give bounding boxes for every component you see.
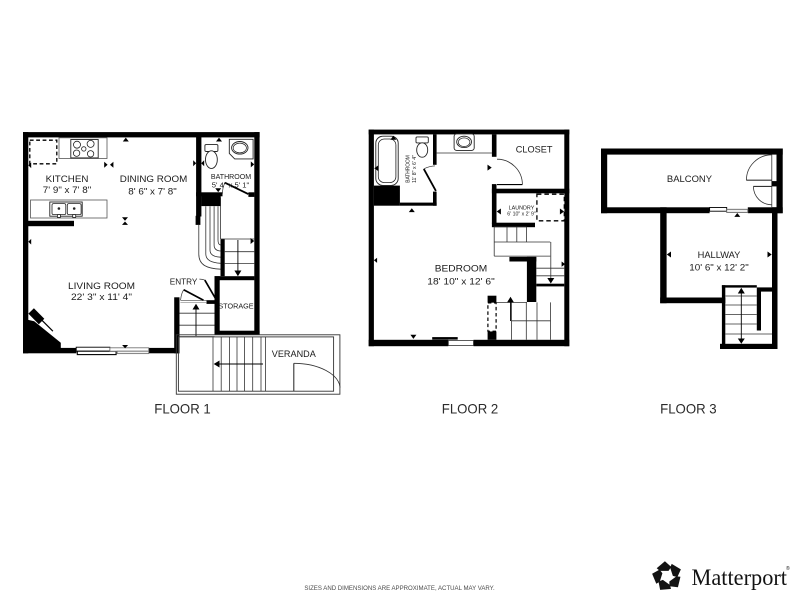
svg-text:LAUNDRY: LAUNDRY [509, 205, 535, 211]
svg-text:FLOOR 3: FLOOR 3 [660, 401, 717, 417]
svg-text:Matterport: Matterport [692, 565, 788, 590]
svg-text:8' 6" x 7' 8": 8' 6" x 7' 8" [128, 187, 176, 197]
svg-text:BEDROOM: BEDROOM [435, 264, 488, 275]
svg-text:11' 8" x 6' 4": 11' 8" x 6' 4" [412, 155, 418, 183]
svg-text:5' 4" x 5' 1": 5' 4" x 5' 1" [212, 180, 250, 189]
svg-text:FLOOR 1: FLOOR 1 [154, 401, 211, 417]
svg-text:LIVING ROOM: LIVING ROOM [68, 281, 135, 291]
svg-text:STORAGE: STORAGE [218, 302, 253, 311]
svg-text:6' 10" x 2' 9": 6' 10" x 2' 9" [507, 211, 536, 217]
svg-text:18' 10" x 12' 6": 18' 10" x 12' 6" [427, 276, 495, 287]
svg-text:BATHROOM: BATHROOM [406, 155, 412, 183]
svg-text:HALLWAY: HALLWAY [698, 250, 741, 260]
svg-text:DINING ROOM: DINING ROOM [120, 174, 188, 184]
svg-text:SIZES AND DIMENSIONS ARE APPRO: SIZES AND DIMENSIONS ARE APPROXIMATE, AC… [304, 585, 494, 592]
svg-text:®: ® [786, 565, 790, 572]
svg-text:BALCONY: BALCONY [667, 174, 712, 184]
svg-text:KITCHEN: KITCHEN [46, 174, 89, 184]
svg-text:ENTRY: ENTRY [170, 278, 198, 287]
svg-text:22' 3" x 11' 4": 22' 3" x 11' 4" [71, 292, 132, 302]
svg-text:FLOOR 2: FLOOR 2 [442, 401, 499, 417]
svg-text:CLOSET: CLOSET [516, 145, 553, 155]
svg-text:VERANDA: VERANDA [272, 349, 316, 359]
svg-text:7' 9" x 7' 8": 7' 9" x 7' 8" [43, 185, 91, 195]
svg-text:10' 6" x 12' 2": 10' 6" x 12' 2" [689, 263, 748, 273]
